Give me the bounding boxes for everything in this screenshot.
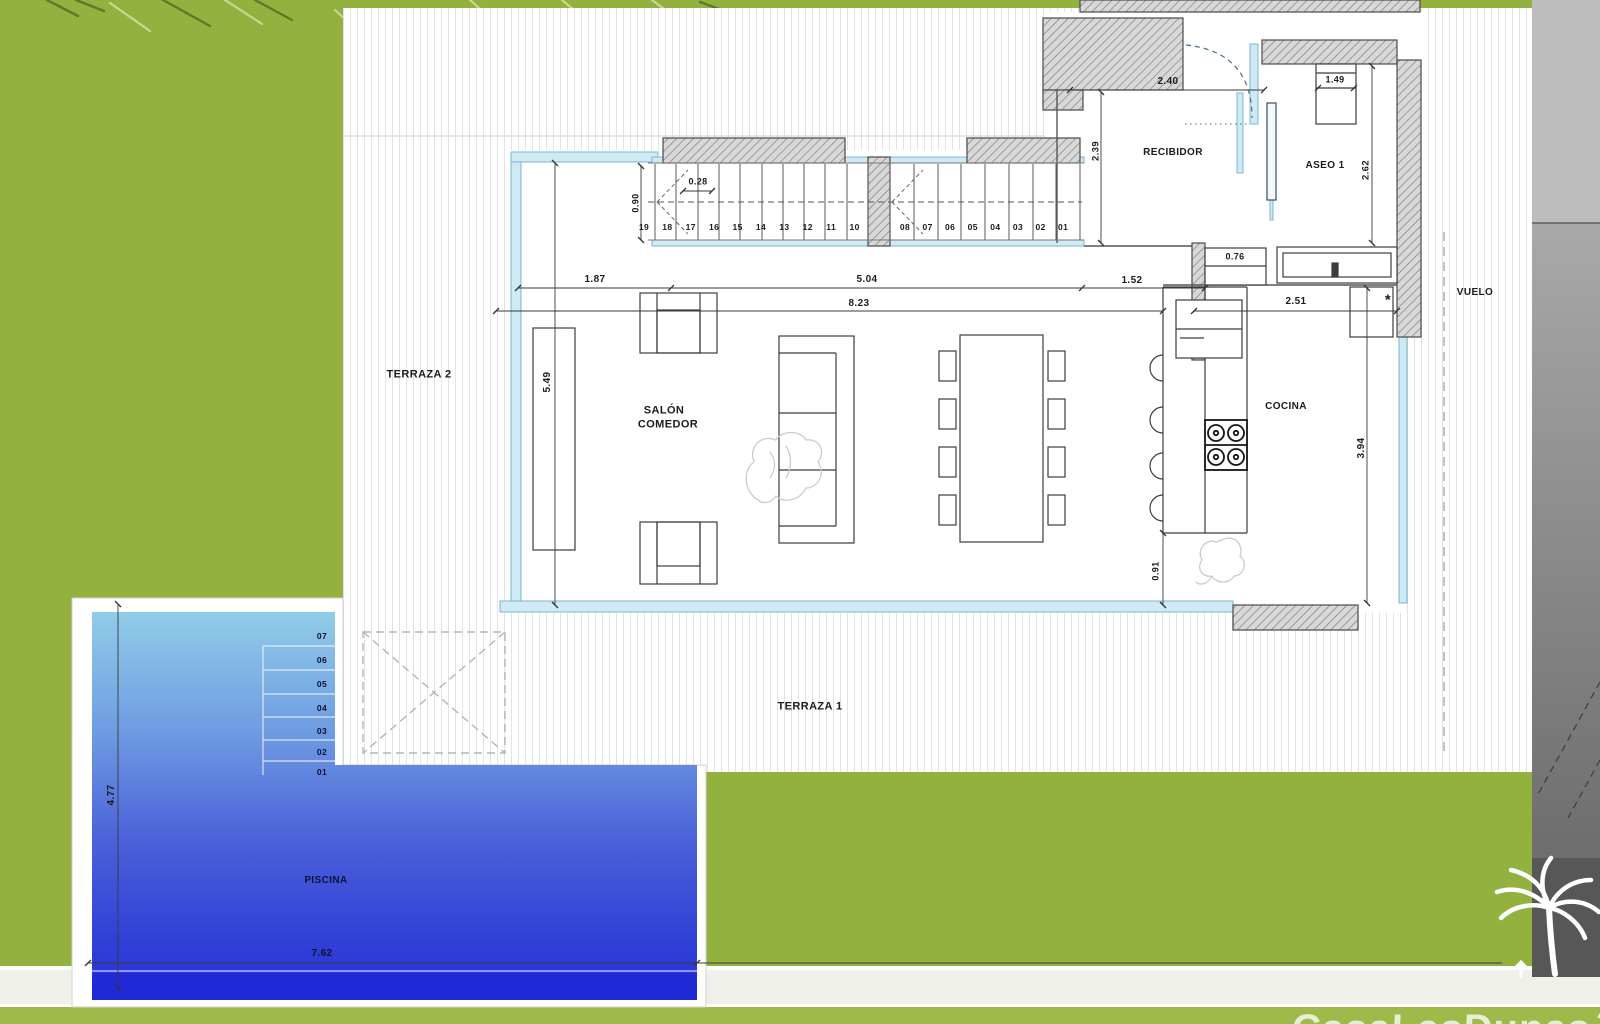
wall-aseo-north: [1262, 40, 1397, 64]
floorplan-stage: TERRAZA 2TERRAZA 1SALÓNCOMEDORRECIBIDORA…: [0, 0, 1600, 1024]
watermark-text: CasaLasDunas: [1291, 1007, 1592, 1024]
aseo-door-track: [1270, 198, 1273, 220]
closet-long: [1277, 247, 1397, 283]
wall-stair-band-b: [967, 138, 1080, 163]
glass-kitchen-east: [1399, 337, 1407, 603]
watermark-mark: 2: [1591, 1000, 1600, 1024]
wall-east-column: [1397, 60, 1421, 337]
watermark-logo-text: CasaLasDunas2: [1291, 999, 1600, 1024]
armchair-top: [640, 293, 717, 353]
wall-kitchen-south: [1233, 605, 1358, 630]
wall-entry-tab: [1043, 90, 1083, 110]
glass-north-segment: [511, 152, 658, 162]
dining-table: [960, 335, 1043, 542]
sideboard: [533, 328, 575, 550]
floorplan-drawing: [0, 0, 1600, 1024]
armchair-bottom: [640, 522, 717, 584]
aseo-sink: [1316, 64, 1356, 124]
glass-recibidor-partition: [1237, 93, 1243, 173]
asterisk-box: [1350, 287, 1393, 337]
sofa: [779, 336, 854, 543]
aseo-door-leaf: [1267, 103, 1276, 200]
pool-deep-band: [92, 973, 697, 1000]
glass-entry-sidelight: [1250, 44, 1258, 124]
wall-stair-band-a: [663, 138, 845, 163]
wall-entry-block: [1043, 18, 1183, 90]
wall-top-edge: [1080, 0, 1420, 12]
closet-small: [1205, 248, 1266, 285]
kitchen-sink-unit: [1176, 300, 1242, 358]
glass-west-wall: [511, 152, 521, 612]
glass-south-wall: [500, 601, 1233, 612]
neighbour-gray-panel: [1532, 0, 1600, 977]
stove: [1205, 420, 1247, 470]
